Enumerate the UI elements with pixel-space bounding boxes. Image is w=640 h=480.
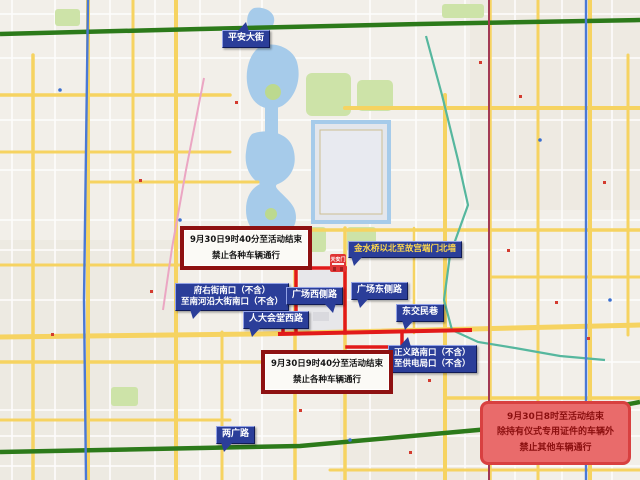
label-text: 广场西侧路 <box>292 290 337 300</box>
label-pointer <box>351 256 363 266</box>
label-text-line1: 正义路南口（不含） <box>394 348 471 359</box>
label-text-line2: 至南河沿大街南口（不含） <box>181 297 283 308</box>
label-text-line1: 府右街南口（不含） <box>181 286 283 297</box>
label-pointer <box>249 327 261 337</box>
road-label-square-east-road: 广场东侧路 <box>351 282 408 300</box>
road-label-square-west-road: 广场西侧路 <box>286 287 343 305</box>
label-pointer <box>237 22 249 32</box>
label-text: 金水桥以北至故宫端门北墙 <box>354 244 456 254</box>
notice-line3: 禁止其他车辆通行 <box>497 441 614 456</box>
label-pointer <box>402 320 414 330</box>
label-pointer <box>357 298 369 308</box>
label-pointer <box>221 442 233 452</box>
special-permit-notice: 9月30日8时至活动结束 除持有仪式专用证件的车辆外 禁止其他车辆通行 <box>480 401 631 465</box>
notice-line2: 除持有仪式专用证件的车辆外 <box>497 425 614 440</box>
road-label-liangguang-road: 两广路 <box>216 426 255 444</box>
restriction-notice-bottom: 9月30日9时40分至活动结束 禁止各种车辆通行 <box>261 350 393 394</box>
label-text: 东交民巷 <box>402 307 438 317</box>
label-text: 广场东侧路 <box>357 285 402 295</box>
memorial-hall <box>313 312 329 321</box>
road-label-zhengyi-road-section: 正义路南口（不含） 至供电局口（不含） <box>388 345 477 373</box>
tiananmen-label: 天安门 <box>330 256 345 263</box>
label-text: 平安大街 <box>228 33 264 43</box>
label-pointer <box>190 309 202 319</box>
road-label-jinshuiqiao: 金水桥以北至故宫端门北墙 <box>348 241 462 258</box>
road-label-dongjiaominxiang: 东交民巷 <box>396 304 444 322</box>
label-text: 人大会堂西路 <box>249 314 303 324</box>
label-text-line2: 至供电局口（不含） <box>394 359 471 370</box>
label-text: 两广路 <box>222 429 249 439</box>
label-pointer <box>399 337 411 347</box>
road-label-fuyoujie-section: 府右街南口（不含） 至南河沿大街南口（不含） <box>175 283 289 311</box>
notice-line1: 9月30日9时40分至活动结束 <box>271 356 383 372</box>
road-label-pingan-avenue: 平安大街 <box>222 30 270 48</box>
notice-line2: 禁止各种车辆通行 <box>271 372 383 388</box>
label-pointer <box>324 303 336 313</box>
forbidden-city <box>313 122 389 222</box>
tiananmen-gate-icon: 天安门 <box>330 254 346 272</box>
notice-line1: 9月30日8时至活动结束 <box>497 410 614 425</box>
notice-line2: 禁止各种车辆通行 <box>190 248 302 264</box>
restriction-notice-top: 9月30日9时40分至活动结束 禁止各种车辆通行 <box>180 226 312 270</box>
traffic-control-map[interactable]: 天安门 平安大街 金水桥以北至故宫端门北墙 府右街南口（不含） 至南河沿大街南口… <box>0 0 640 480</box>
notice-line1: 9月30日9时40分至活动结束 <box>190 232 302 248</box>
road-label-renda-west-road: 人大会堂西路 <box>243 311 309 329</box>
